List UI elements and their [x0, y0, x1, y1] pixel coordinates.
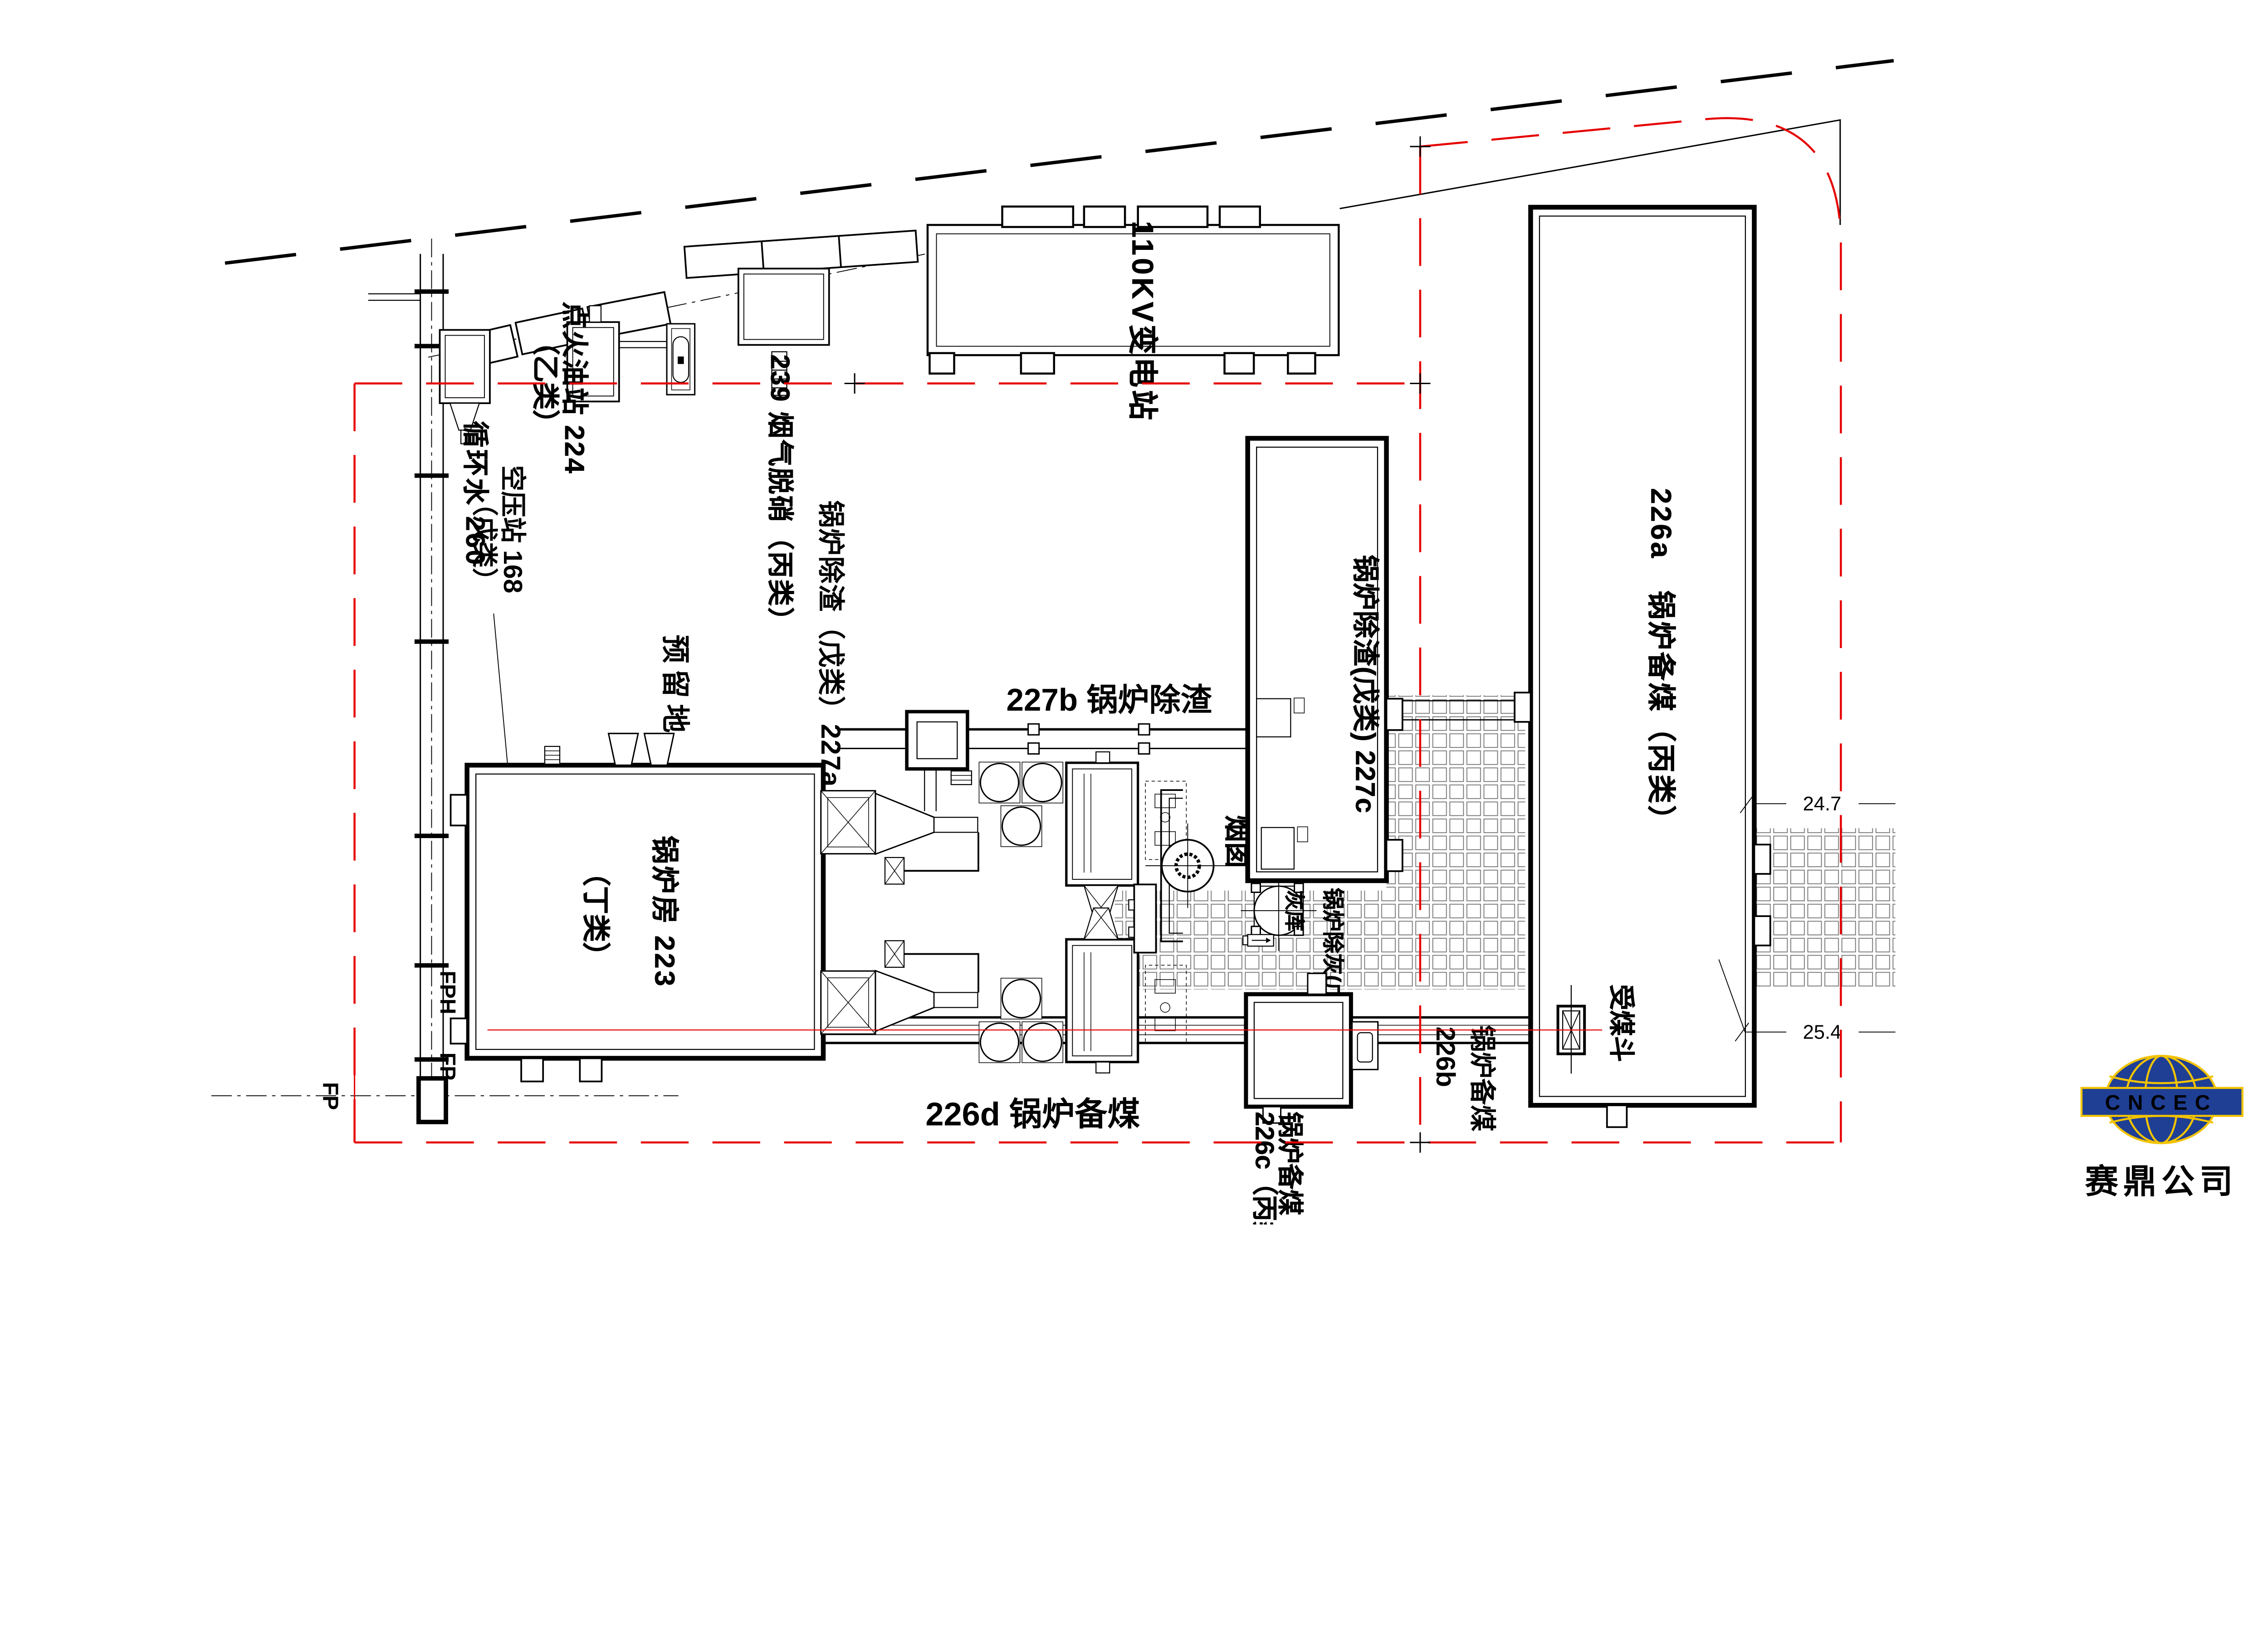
utility-corridor: FPH FP FP — [318, 239, 460, 1122]
air-compressor-label: 空压站 168 — [498, 465, 527, 593]
building-coal-226c: 锅炉备煤 226c（丙类） — [1246, 973, 1378, 1224]
building-boiler-house-223: 锅炉房 223 （丁类） — [451, 733, 823, 1081]
cncec-logo: CNCEC 赛鼎公司 — [2082, 1056, 2243, 1200]
coal-226a-label: 226a 锅炉备煤（丙类） — [1645, 488, 1677, 836]
rack-fph-label: FPH — [435, 971, 460, 1014]
boiler-house-class-label: （丁类） — [580, 858, 611, 970]
building-coal-226a: 226a 锅炉备煤（丙类） — [1515, 207, 1770, 1127]
corridor-end-box — [419, 1078, 446, 1122]
coal-226b-no-label: 226b — [1431, 1027, 1460, 1088]
coal-hopper-label: 受煤斗 — [1607, 984, 1636, 1062]
coal-226c-name-label: 锅炉备煤 — [1275, 1112, 1304, 1215]
conveyor-227b-label: 227b 锅炉除渣 — [1007, 682, 1212, 717]
logo-acronym: CNCEC — [2105, 1091, 2218, 1114]
substation-label: 110KV变电站 — [1126, 221, 1159, 423]
rack-fp-label: FP — [435, 1053, 460, 1080]
logo-company-name: 赛鼎公司 — [2085, 1162, 2238, 1200]
slag-227a-label: 锅炉除渣（戊类）227a — [816, 500, 846, 787]
site-plan-drawing: FPH FP FP 循环水 260 点火油站 224 （乙类） 239 烟气脱硝… — [0, 0, 2268, 1224]
left-fp-label: FP — [318, 1082, 342, 1110]
dimension-24-7: 24.7 — [1740, 793, 1896, 815]
building-ignition-oil-224: 点火油站 224 （乙类） — [530, 302, 694, 474]
dim-25-4-text: 25.4 — [1803, 1022, 1842, 1044]
ignition-oil-class-label: （乙类） — [530, 328, 560, 437]
building-substation-110kv: 110KV变电站 — [928, 206, 1339, 423]
ignition-oil-label: 点火油站 224 — [559, 302, 590, 474]
coal-226c-no-label: 226c（丙类） — [1250, 1112, 1279, 1224]
dim-24-7-text: 24.7 — [1803, 793, 1842, 815]
ash-silo-label: 灰库 — [1283, 890, 1306, 931]
building-slag-227c: 锅炉除渣(戊类) 227c — [1248, 438, 1403, 880]
denitration-label: 239 烟气脱硝（丙类） — [765, 355, 795, 635]
boiler-house-label: 锅炉房 223 — [649, 836, 680, 988]
reserved-land-label: 预留地 — [659, 634, 691, 739]
air-compressor-class-label: （戊类） — [469, 490, 499, 594]
coal-226d-label: 226d 锅炉备煤 — [925, 1097, 1140, 1133]
slag-227c-label: 锅炉除渣(戊类) 227c — [1350, 555, 1381, 814]
coal-226b-name-label: 锅炉备煤 — [1467, 1025, 1497, 1132]
building-denitration-239: 239 烟气脱硝（丙类） — [738, 268, 829, 635]
